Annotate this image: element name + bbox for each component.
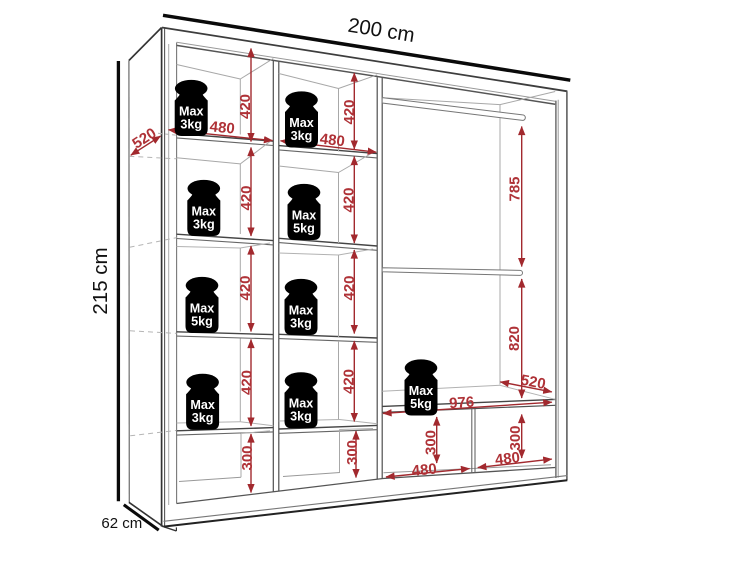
svg-text:Max: Max	[289, 116, 314, 130]
svg-text:420: 420	[340, 187, 357, 212]
svg-text:420: 420	[237, 94, 254, 119]
svg-text:3kg: 3kg	[192, 411, 214, 425]
svg-text:3kg: 3kg	[180, 117, 202, 131]
svg-text:300: 300	[344, 440, 361, 465]
svg-text:420: 420	[238, 185, 255, 210]
svg-text:480: 480	[494, 449, 521, 469]
svg-text:5kg: 5kg	[191, 314, 213, 328]
svg-text:976: 976	[449, 394, 475, 413]
svg-text:420: 420	[237, 275, 254, 300]
svg-text:300: 300	[422, 430, 439, 455]
svg-text:820: 820	[506, 326, 523, 351]
svg-text:480: 480	[411, 460, 438, 479]
svg-text:5kg: 5kg	[410, 397, 432, 411]
svg-text:Max: Max	[190, 301, 215, 315]
svg-text:Max: Max	[190, 398, 215, 412]
svg-text:62 cm: 62 cm	[101, 515, 142, 532]
svg-text:420: 420	[341, 275, 358, 300]
svg-text:Max: Max	[409, 384, 434, 398]
svg-text:Max: Max	[289, 303, 314, 317]
svg-text:420: 420	[238, 370, 255, 395]
svg-text:3kg: 3kg	[193, 217, 215, 231]
svg-text:300: 300	[239, 445, 256, 470]
svg-text:3kg: 3kg	[290, 410, 312, 424]
svg-text:Max: Max	[292, 208, 317, 222]
svg-text:420: 420	[340, 369, 357, 394]
svg-text:785: 785	[507, 176, 524, 201]
svg-text:215 cm: 215 cm	[89, 247, 112, 314]
svg-text:420: 420	[341, 99, 358, 124]
svg-text:3kg: 3kg	[290, 316, 312, 330]
svg-text:480: 480	[209, 118, 236, 138]
svg-text:Max: Max	[179, 104, 204, 118]
svg-text:Max: Max	[289, 397, 314, 411]
svg-text:3kg: 3kg	[291, 129, 313, 143]
svg-text:480: 480	[319, 130, 346, 150]
svg-text:300: 300	[507, 425, 524, 450]
svg-text:5kg: 5kg	[293, 221, 315, 235]
svg-text:Max: Max	[192, 204, 217, 218]
